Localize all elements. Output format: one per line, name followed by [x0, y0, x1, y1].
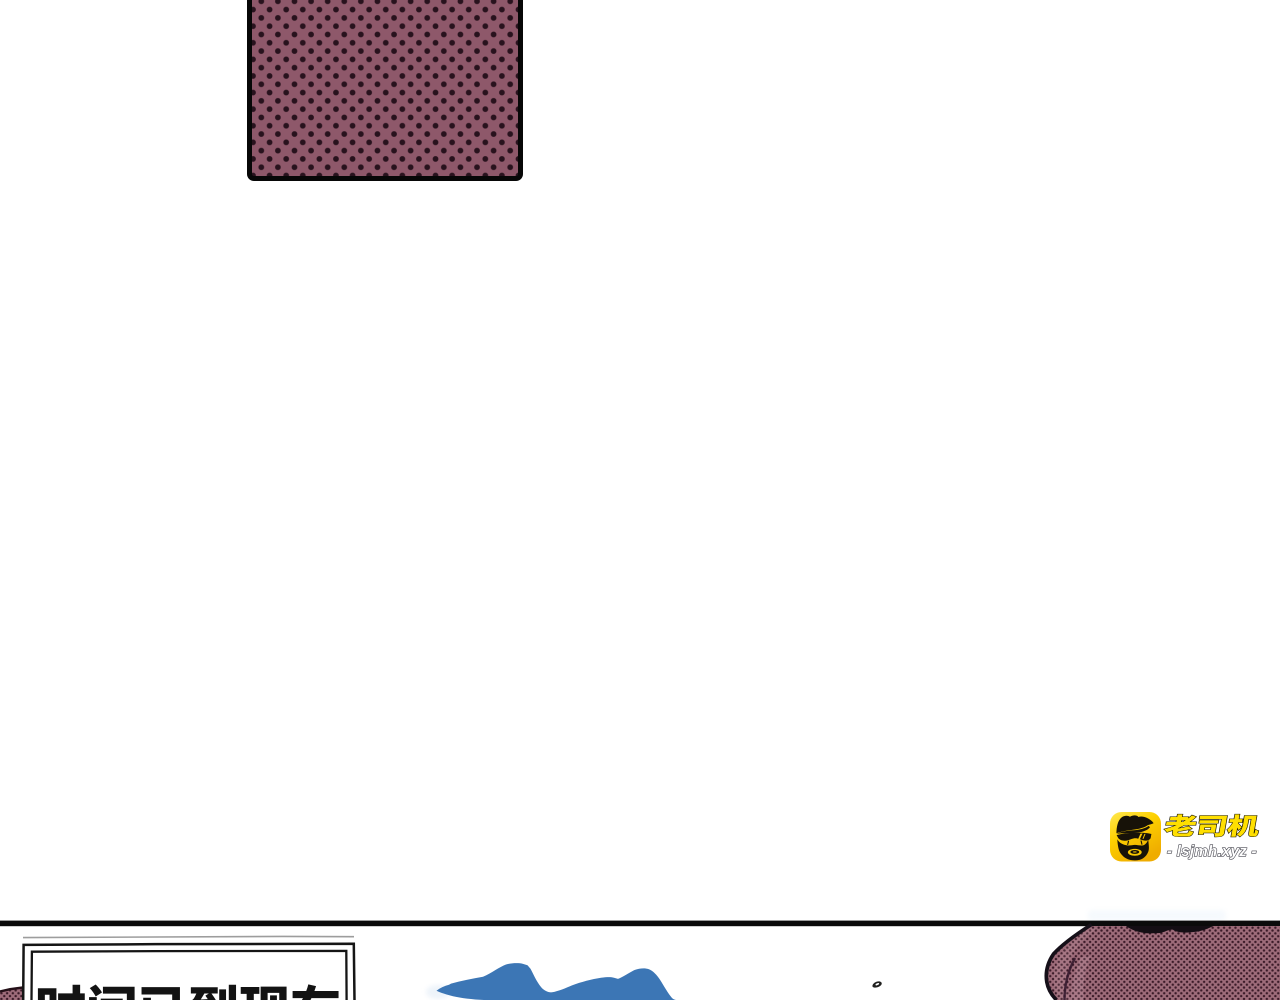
svg-text:- lsjmh.xyz -: - lsjmh.xyz - — [1167, 843, 1257, 860]
